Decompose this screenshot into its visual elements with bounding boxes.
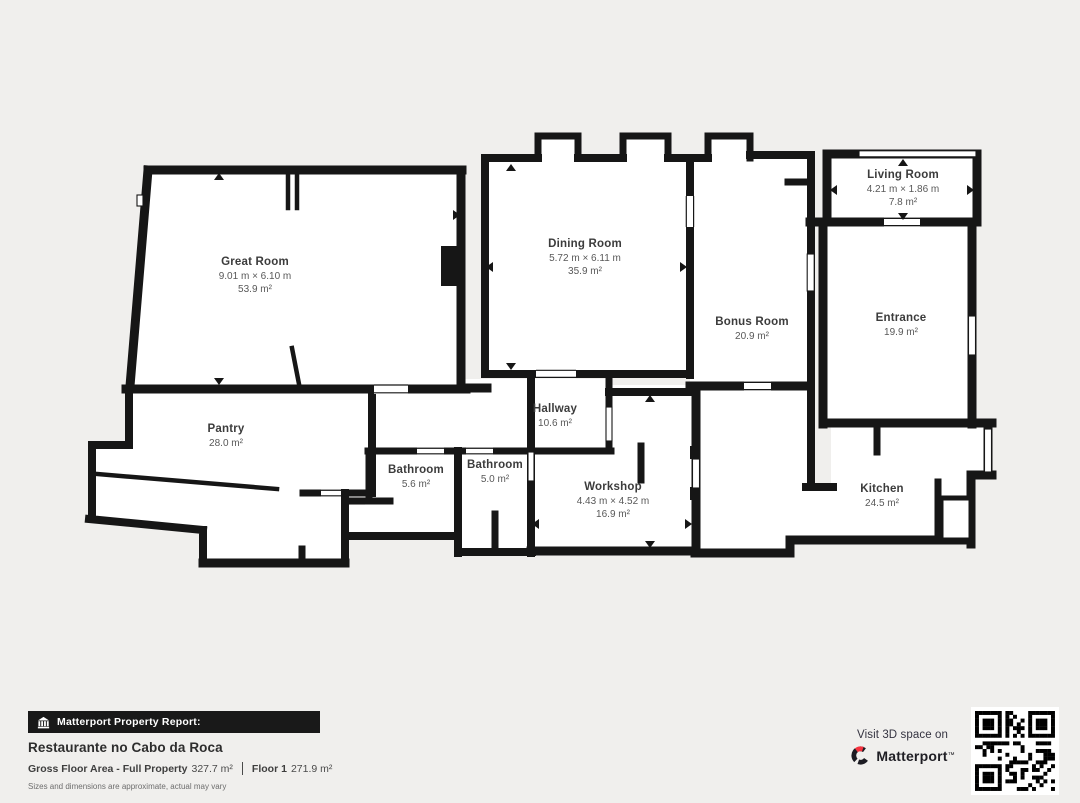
visit-3d-text: Visit 3D space on bbox=[840, 729, 965, 741]
floor-plan bbox=[0, 0, 1080, 803]
trademark-symbol: ™ bbox=[948, 752, 955, 759]
floor-label: Floor 1 bbox=[252, 763, 287, 775]
matterport-logo: Matterport™ bbox=[840, 745, 965, 766]
report-banner: Matterport Property Report: bbox=[28, 711, 320, 733]
gross-floor-area-label: Gross Floor Area - Full Property bbox=[28, 763, 187, 775]
property-title: Restaurante no Cabo da Roca bbox=[28, 740, 223, 755]
disclaimer-text: Sizes and dimensions are approximate, ac… bbox=[28, 782, 226, 791]
floor-value: 271.9 m² bbox=[291, 763, 332, 775]
room-areas bbox=[89, 135, 988, 563]
building-icon bbox=[37, 716, 50, 729]
matterport-logo-icon bbox=[850, 745, 871, 766]
report-banner-label: Matterport Property Report: bbox=[57, 716, 201, 728]
qr-code bbox=[971, 707, 1059, 795]
separator bbox=[242, 762, 243, 775]
gross-floor-area-value: 327.7 m² bbox=[191, 763, 232, 775]
area-summary: Gross Floor Area - Full Property 327.7 m… bbox=[28, 762, 332, 775]
visit-3d-cta: Visit 3D space on Matterport™ bbox=[840, 729, 965, 766]
matterport-wordmark: Matterport bbox=[876, 748, 947, 764]
